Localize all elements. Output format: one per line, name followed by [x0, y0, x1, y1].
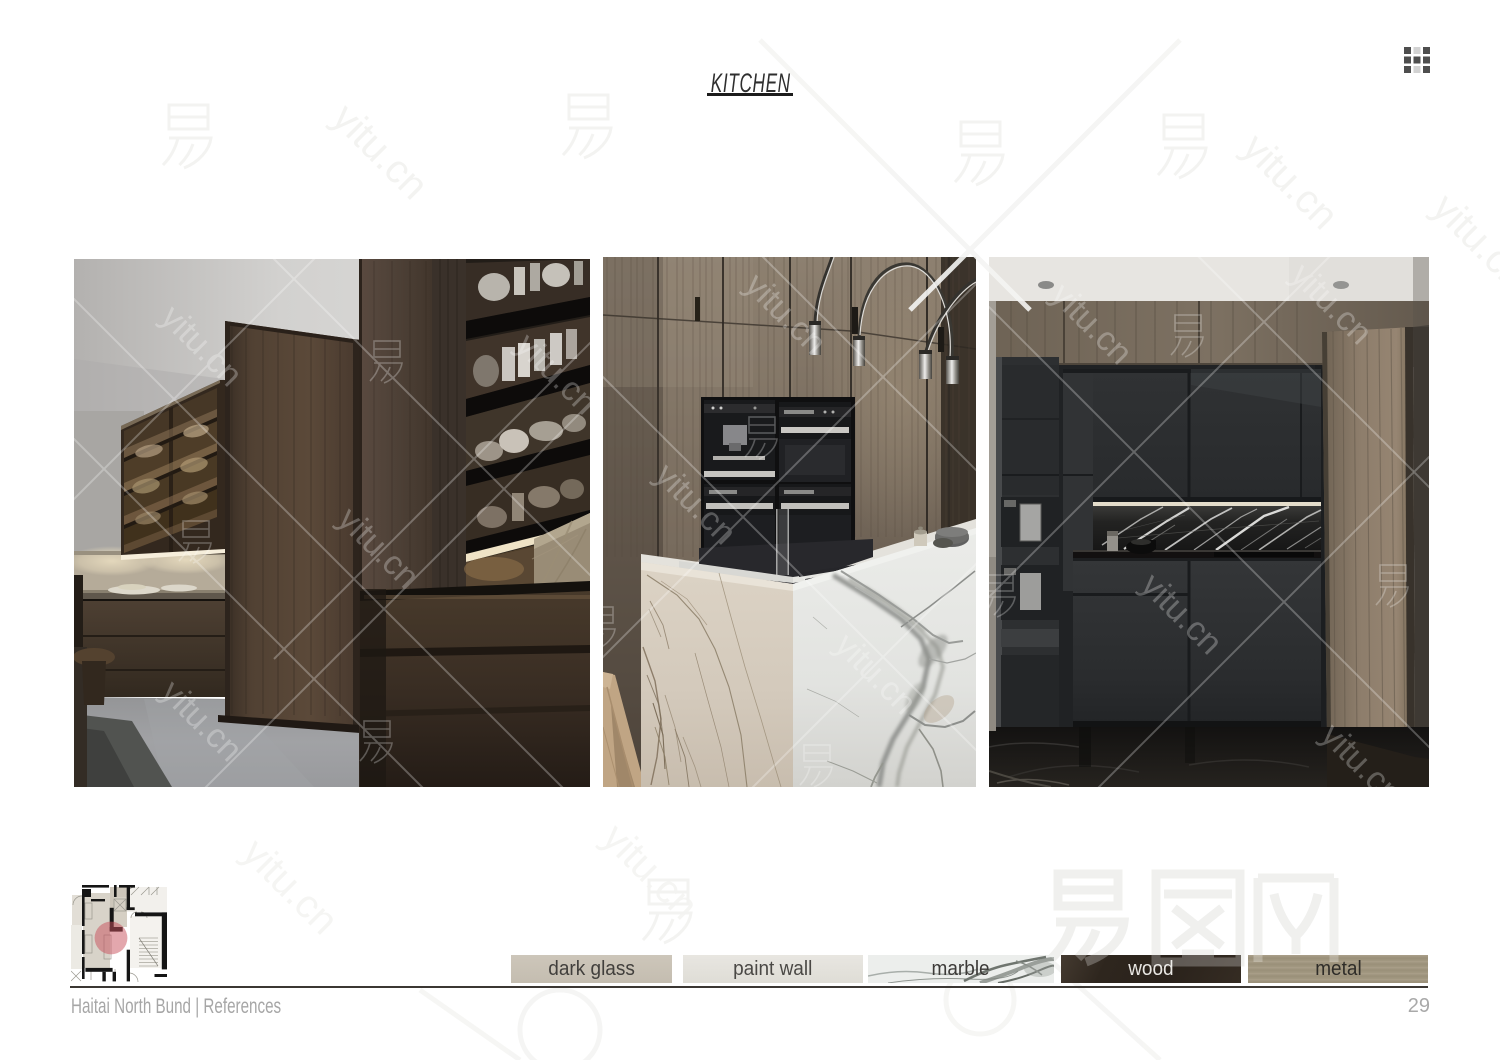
svg-text:yitu.cn: yitu.cn — [1424, 185, 1500, 298]
svg-text:yitu.cn: yitu.cn — [324, 95, 437, 208]
svg-text:yitu.cn: yitu.cn — [1234, 125, 1347, 238]
svg-text:yitu.cn: yitu.cn — [234, 830, 347, 943]
svg-text:yitu.cn: yitu.cn — [594, 815, 707, 928]
